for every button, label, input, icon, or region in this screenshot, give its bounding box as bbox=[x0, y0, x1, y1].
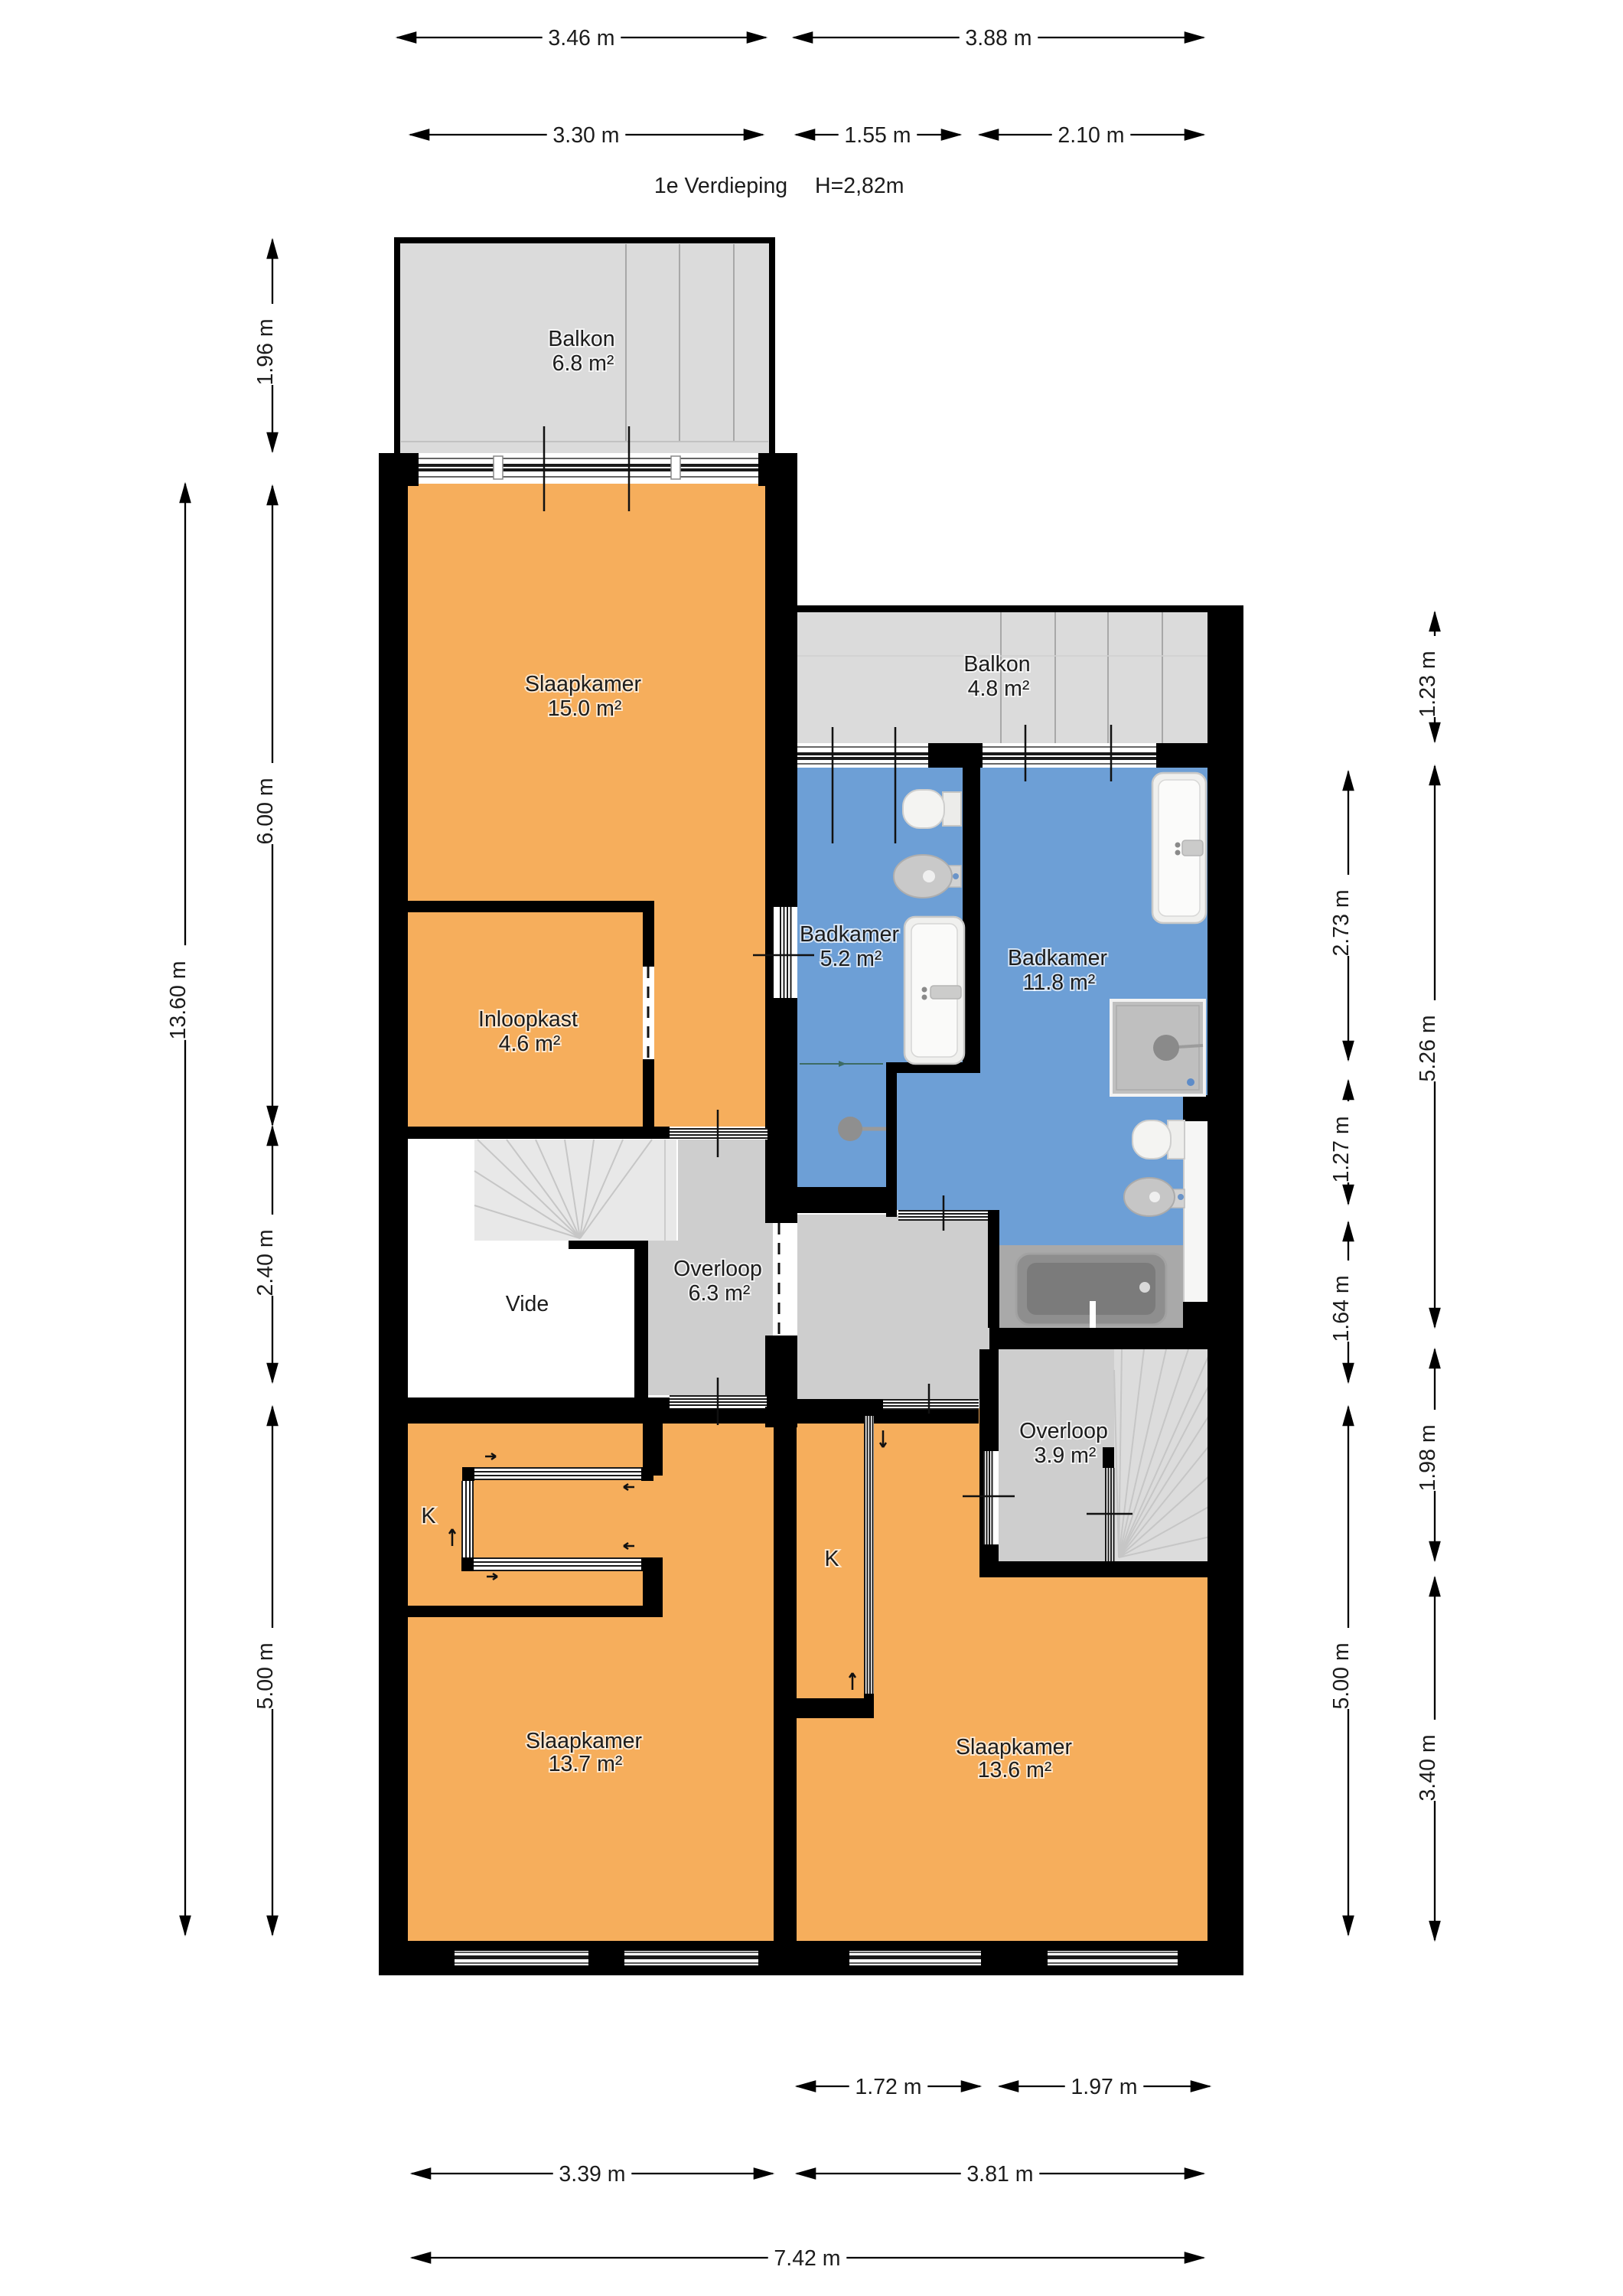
svg-text:Overloop: Overloop bbox=[673, 1257, 762, 1281]
svg-text:Vide: Vide bbox=[506, 1292, 549, 1316]
svg-text:Balkon: Balkon bbox=[963, 652, 1030, 677]
svg-text:K: K bbox=[824, 1547, 839, 1571]
svg-text:13.6 m²: 13.6 m² bbox=[978, 1758, 1052, 1782]
svg-text:Badkamer: Badkamer bbox=[800, 922, 899, 947]
svg-text:5.26 m: 5.26 m bbox=[1416, 1015, 1440, 1081]
svg-text:Slaapkamer: Slaapkamer bbox=[956, 1735, 1073, 1760]
svg-text:Balkon: Balkon bbox=[548, 327, 614, 351]
svg-text:6.3 m²: 6.3 m² bbox=[689, 1281, 751, 1306]
svg-text:3.30 m: 3.30 m bbox=[552, 123, 619, 148]
svg-text:3.39 m: 3.39 m bbox=[559, 2162, 625, 2187]
svg-text:1.96 m: 1.96 m bbox=[253, 318, 278, 385]
svg-text:5.2 m²: 5.2 m² bbox=[820, 947, 882, 971]
svg-text:4.6 m²: 4.6 m² bbox=[499, 1032, 561, 1056]
svg-text:7.42 m: 7.42 m bbox=[774, 2246, 840, 2271]
svg-text:6.8 m²: 6.8 m² bbox=[552, 351, 614, 376]
svg-text:K: K bbox=[421, 1504, 435, 1528]
svg-text:15.0 m²: 15.0 m² bbox=[548, 696, 622, 721]
svg-text:Slaapkamer: Slaapkamer bbox=[526, 1729, 643, 1753]
svg-text:3.46 m: 3.46 m bbox=[548, 26, 614, 51]
svg-text:2.10 m: 2.10 m bbox=[1058, 123, 1124, 148]
svg-text:Badkamer: Badkamer bbox=[1008, 946, 1107, 970]
svg-text:2.40 m: 2.40 m bbox=[253, 1229, 278, 1296]
svg-text:1e Verdieping: 1e Verdieping bbox=[654, 174, 787, 198]
svg-text:Slaapkamer: Slaapkamer bbox=[525, 672, 642, 696]
svg-text:Overloop: Overloop bbox=[1019, 1419, 1108, 1443]
svg-text:1.23 m: 1.23 m bbox=[1416, 651, 1440, 717]
svg-text:1.98 m: 1.98 m bbox=[1416, 1424, 1440, 1491]
svg-text:4.8 m²: 4.8 m² bbox=[968, 677, 1030, 701]
svg-text:3.81 m: 3.81 m bbox=[966, 2162, 1033, 2187]
svg-text:1.72 m: 1.72 m bbox=[855, 2075, 921, 2099]
svg-text:5.00 m: 5.00 m bbox=[253, 1642, 278, 1709]
svg-text:3.40 m: 3.40 m bbox=[1416, 1734, 1440, 1801]
svg-text:2.73 m: 2.73 m bbox=[1329, 889, 1354, 956]
svg-text:H=2,82m: H=2,82m bbox=[815, 174, 904, 198]
svg-text:1.97 m: 1.97 m bbox=[1071, 2075, 1137, 2099]
svg-text:3.9 m²: 3.9 m² bbox=[1035, 1443, 1097, 1468]
svg-text:13.60 m: 13.60 m bbox=[166, 960, 191, 1039]
svg-text:1.27 m: 1.27 m bbox=[1329, 1116, 1354, 1182]
svg-text:Inloopkast: Inloopkast bbox=[478, 1007, 578, 1032]
svg-text:1.55 m: 1.55 m bbox=[844, 123, 911, 148]
svg-text:3.88 m: 3.88 m bbox=[965, 26, 1031, 51]
svg-text:1.64 m: 1.64 m bbox=[1329, 1275, 1354, 1342]
svg-text:6.00 m: 6.00 m bbox=[253, 778, 278, 844]
svg-text:11.8 m²: 11.8 m² bbox=[1023, 970, 1096, 995]
svg-text:13.7 m²: 13.7 m² bbox=[549, 1752, 623, 1776]
svg-text:5.00 m: 5.00 m bbox=[1329, 1642, 1354, 1709]
